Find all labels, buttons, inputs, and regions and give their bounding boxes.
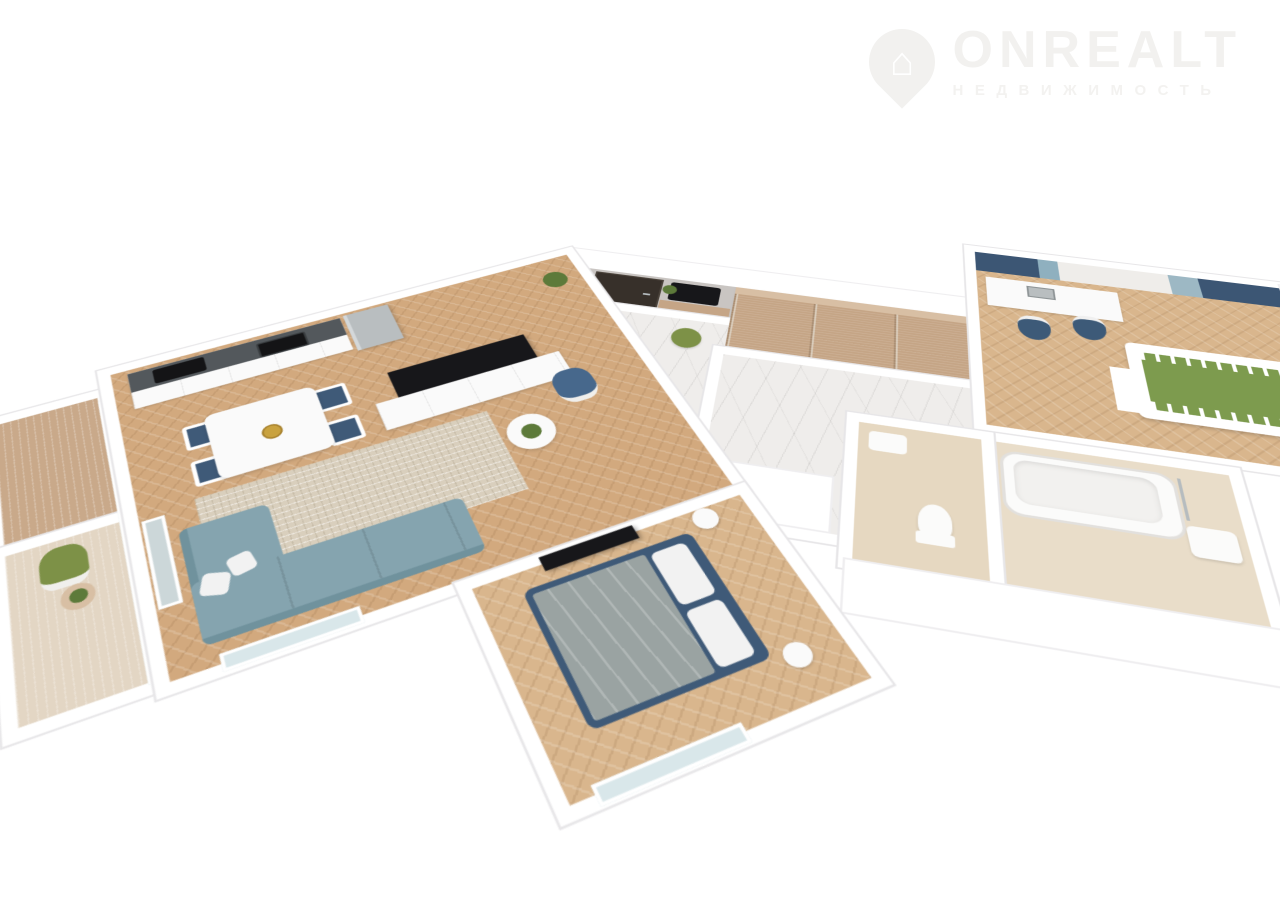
scene: [0, 0, 1280, 910]
brand-subtitle: НЕДВИЖИМОСТЬ: [953, 82, 1223, 99]
floor-plan-render: ⌂ ONREALT НЕДВИЖИМОСТЬ: [0, 0, 1280, 910]
brand-name: ONREALT: [953, 24, 1242, 76]
house-glyph: ⌂: [889, 42, 913, 82]
watermark-text: ONREALT НЕДВИЖИМОСТЬ: [953, 24, 1242, 99]
house-pin-icon: ⌂: [855, 15, 948, 108]
apartment-plan: [0, 132, 1280, 910]
watermark: ⌂ ONREALT НЕДВИЖИМОСТЬ: [869, 24, 1242, 99]
